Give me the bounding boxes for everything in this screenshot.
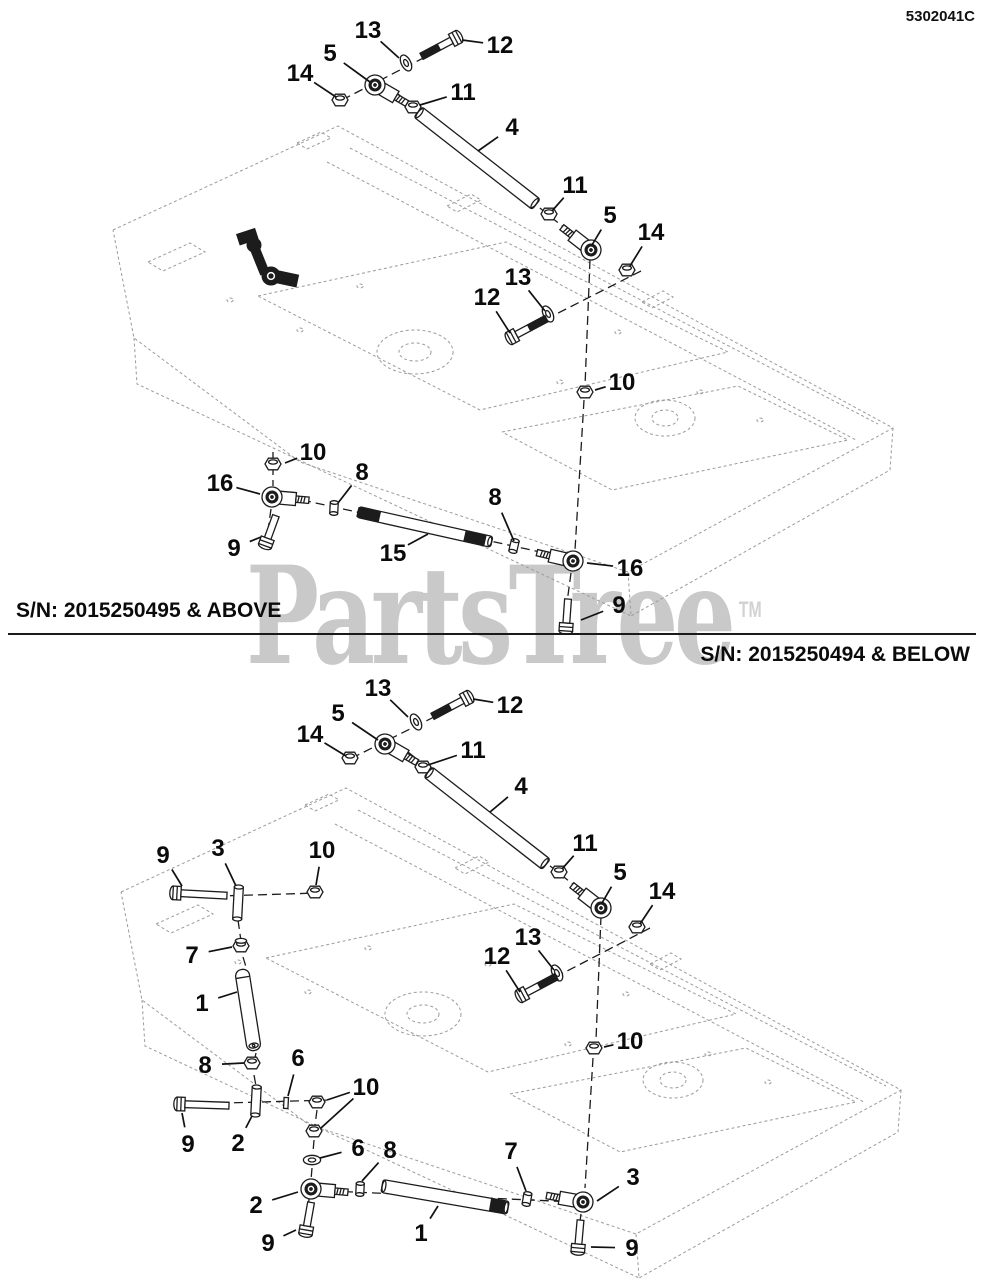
- callout-label: 6: [351, 1135, 364, 1162]
- callout-label: 7: [185, 942, 198, 969]
- callout-label: 8: [355, 459, 368, 486]
- part-spacer: [356, 1182, 365, 1197]
- part-tube: [251, 1085, 262, 1117]
- callout-8: 8: [362, 1137, 397, 1181]
- callout-9: 9: [156, 842, 182, 886]
- callout-label: 1: [414, 1220, 427, 1247]
- callout-label: 10: [300, 439, 327, 466]
- callout-10: 10: [309, 837, 336, 885]
- part-link: [237, 229, 299, 287]
- callout-label: 13: [515, 924, 542, 951]
- callout-label: 7: [504, 1138, 517, 1165]
- callout-label: 11: [572, 830, 597, 857]
- callout-3: 3: [211, 835, 236, 886]
- callout-label: 10: [617, 1028, 644, 1055]
- callout-label: 10: [309, 837, 336, 864]
- part-nut: [629, 921, 645, 933]
- callout-label: 16: [617, 555, 644, 582]
- callout-14: 14: [630, 219, 665, 266]
- callout-14: 14: [640, 878, 676, 924]
- callout-7: 7: [185, 942, 232, 969]
- callout-12: 12: [474, 284, 510, 333]
- callout-label: 14: [649, 878, 676, 905]
- callout-6: 6: [288, 1045, 305, 1096]
- part-bolt: [298, 1201, 318, 1238]
- callout-label: 2: [249, 1192, 262, 1219]
- part-washer: [408, 712, 424, 732]
- callout-9: 9: [261, 1230, 296, 1257]
- callout-label: 12: [474, 284, 501, 311]
- callout-label: 9: [612, 592, 625, 619]
- callout-label: 14: [297, 721, 324, 748]
- upper-diagram: 131251411411514131210168915810169: [113, 17, 893, 635]
- part-nut: [244, 1057, 260, 1069]
- part-rodend: [566, 877, 615, 922]
- callout-9: 9: [181, 1113, 194, 1158]
- callout-label: 16: [207, 470, 234, 497]
- callout-2: 2: [231, 1116, 252, 1157]
- callout-4: 4: [490, 773, 528, 812]
- part-nut: [309, 1096, 325, 1108]
- part-pin: [284, 1097, 289, 1108]
- part-bolt: [418, 29, 464, 62]
- callout-label: 8: [488, 484, 501, 511]
- callout-label: 4: [514, 773, 528, 800]
- callout-label: 2: [231, 1130, 244, 1157]
- part-washer: [398, 53, 414, 73]
- part-spacer: [330, 501, 339, 516]
- callout-9: 9: [591, 1235, 639, 1262]
- part-tube: [233, 885, 244, 921]
- callout-10: 10: [285, 439, 326, 466]
- callout-16: 16: [587, 555, 643, 582]
- document-number: 5302041C: [906, 8, 975, 25]
- callout-label: 9: [227, 535, 240, 562]
- lower-diagram: 1312514114115141312931071861092682917310…: [121, 675, 901, 1278]
- part-nut: [586, 1042, 602, 1054]
- callout-11: 11: [420, 79, 476, 106]
- part-cyl: [235, 968, 262, 1051]
- exploded-parts-diagrams: 1312514114115141312101689158101691312514…: [0, 0, 988, 1280]
- callout-label: 11: [450, 79, 475, 106]
- callout-label: 5: [613, 859, 626, 886]
- callout-4: 4: [478, 114, 519, 151]
- callout-10: 10: [595, 369, 635, 396]
- callout-label: 5: [603, 202, 616, 229]
- callout-label: 11: [460, 737, 485, 764]
- callout-1: 1: [195, 990, 237, 1017]
- callout-13: 13: [365, 675, 408, 717]
- parts-diagram-page: PartsTreeTM 1312514114115141312101689158…: [0, 0, 988, 1280]
- callout-5: 5: [331, 700, 378, 740]
- assembly-axes: [188, 698, 650, 1236]
- part-bolt: [429, 689, 475, 722]
- part-spacer: [522, 1191, 532, 1207]
- callout-11: 11: [552, 172, 588, 211]
- callout-label: 3: [211, 835, 224, 862]
- callout-label: 13: [365, 675, 392, 702]
- callout-label: 5: [331, 700, 344, 727]
- part-rodend: [371, 730, 422, 771]
- callout-label: 4: [505, 114, 519, 141]
- callout-15: 15: [380, 534, 428, 567]
- part-rodend: [261, 486, 310, 510]
- part-nut: [551, 866, 567, 878]
- callout-label: 6: [291, 1045, 304, 1072]
- callout-label: 12: [497, 692, 524, 719]
- part-rod: [357, 507, 493, 548]
- part-nut: [342, 752, 358, 764]
- callout-5: 5: [592, 202, 617, 245]
- callout-label: 9: [156, 842, 169, 869]
- part-rodend: [545, 1186, 595, 1214]
- callout-label: 12: [487, 32, 514, 59]
- callout-12: 12: [462, 32, 513, 59]
- part-rodend: [535, 543, 585, 573]
- callout-2: 2: [249, 1192, 298, 1219]
- callout-13: 13: [505, 264, 545, 311]
- part-nut: [541, 208, 557, 220]
- callout-13: 13: [355, 17, 399, 58]
- callout-label: 13: [505, 264, 532, 291]
- callout-1: 1: [414, 1206, 438, 1247]
- callout-label: 1: [195, 990, 208, 1017]
- callout-label: 8: [198, 1052, 211, 1079]
- serial-range-below-label: S/N: 2015250494 & BELOW: [700, 643, 970, 667]
- callout-16: 16: [207, 470, 260, 497]
- callout-label: 8: [383, 1137, 396, 1164]
- part-nut: [306, 1125, 322, 1137]
- callout-label: 14: [287, 60, 314, 87]
- part-nut: [619, 264, 635, 276]
- part-nut: [307, 886, 323, 898]
- callout-10: 10: [604, 1028, 643, 1055]
- callout-label: 9: [625, 1235, 638, 1262]
- part-bolt: [503, 313, 549, 346]
- part-bolt: [559, 599, 575, 635]
- part-washer: [303, 1155, 320, 1164]
- callout-11: 11: [562, 830, 598, 869]
- callout-8: 8: [488, 484, 514, 541]
- callout-label: 12: [484, 943, 511, 970]
- hardware-parts: [169, 689, 645, 1256]
- part-rodend: [300, 1178, 349, 1202]
- callout-label: 14: [638, 219, 665, 246]
- callout-label: 15: [380, 540, 407, 567]
- callout-label: 3: [626, 1164, 639, 1191]
- part-nut: [577, 386, 593, 398]
- callout-label: 9: [181, 1131, 194, 1158]
- callout-3: 3: [597, 1164, 640, 1201]
- callout-label: 10: [353, 1074, 380, 1101]
- callout-10: 10: [321, 1074, 379, 1128]
- part-locknut: [233, 938, 249, 951]
- callout-8: 8: [338, 459, 369, 503]
- callout-label: 10: [609, 369, 636, 396]
- callout-9: 9: [227, 535, 261, 562]
- callout-5: 5: [323, 40, 370, 82]
- part-bolt: [169, 886, 227, 903]
- callout-5: 5: [602, 859, 627, 903]
- part-rod: [414, 107, 540, 210]
- part-bolt: [174, 1097, 230, 1113]
- callout-12: 12: [473, 692, 523, 719]
- callout-13: 13: [515, 924, 554, 970]
- section-divider-line: [8, 633, 976, 635]
- part-bolt: [571, 1220, 588, 1256]
- callout-label: 13: [355, 17, 382, 44]
- callout-11: 11: [428, 737, 486, 765]
- part-nut: [265, 458, 281, 470]
- part-bolt: [513, 971, 559, 1004]
- assembly-axes: [267, 38, 641, 610]
- callout-label: 9: [261, 1230, 274, 1257]
- part-bolt: [257, 513, 282, 551]
- callout-7: 7: [504, 1138, 526, 1191]
- serial-range-above-label: S/N: 2015250495 & ABOVE: [16, 599, 281, 623]
- callout-label: 11: [562, 172, 587, 199]
- callout-8: 8: [198, 1052, 244, 1079]
- deck-outline: [121, 788, 901, 1278]
- callout-label: 5: [323, 40, 336, 67]
